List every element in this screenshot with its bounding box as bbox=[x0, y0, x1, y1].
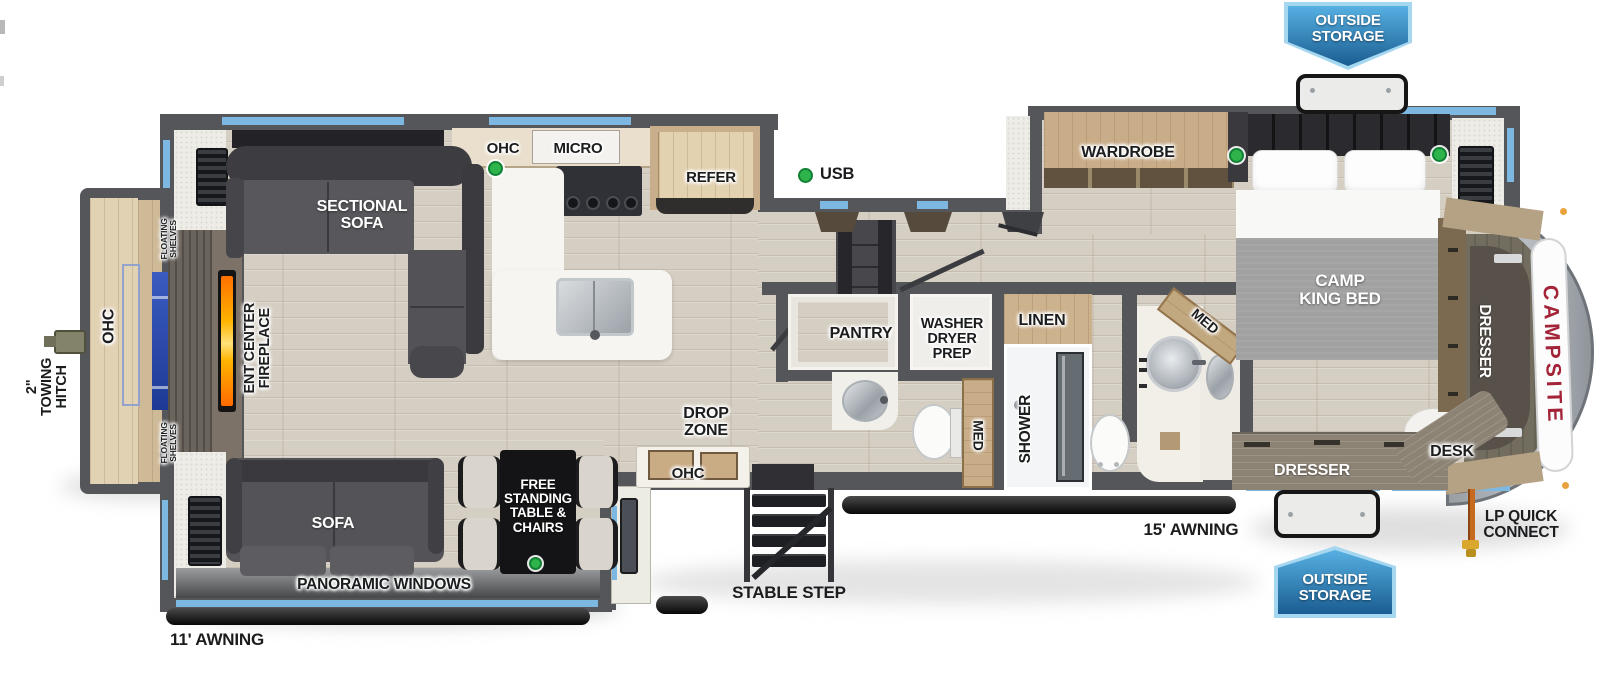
toilet-bolt bbox=[1098, 462, 1103, 467]
drop-zone-label: DROP ZONE bbox=[671, 406, 741, 440]
window-strip bbox=[489, 117, 631, 125]
kitchen-ohc-label: OHC bbox=[478, 141, 528, 157]
stove-burner bbox=[606, 196, 620, 210]
vanity-drawer-pull bbox=[1139, 368, 1147, 372]
bed-side-panel bbox=[1228, 112, 1248, 182]
shower-label: SHOWER bbox=[1018, 393, 1034, 465]
floating-shelves-top-label: FLOATING SHELVES bbox=[160, 215, 178, 263]
camp-king-bed-label: CAMP KING BED bbox=[1285, 272, 1395, 308]
green-indicator-dot bbox=[798, 168, 813, 183]
stable-step-label: STABLE STEP bbox=[729, 584, 849, 602]
sofa-backrest bbox=[230, 460, 440, 482]
green-indicator-dot bbox=[1432, 147, 1447, 162]
window-strip bbox=[820, 201, 848, 209]
drawer-pull bbox=[1384, 442, 1404, 447]
free-standing-table-label: FREE STANDING TABLE & CHAIRS bbox=[495, 478, 581, 535]
bed-pillow bbox=[1344, 150, 1426, 194]
sofa-footrest bbox=[240, 546, 326, 576]
bed-sheet bbox=[1236, 190, 1440, 240]
lp-pipe bbox=[1468, 489, 1475, 545]
tow-hitch-bracket bbox=[54, 330, 86, 354]
green-indicator-dot bbox=[529, 557, 542, 570]
window-strip bbox=[163, 140, 170, 188]
towing-hitch-label: 2" TOWING HITCH bbox=[25, 355, 71, 419]
entry-door-window bbox=[620, 498, 638, 574]
window-strip bbox=[1507, 128, 1514, 182]
sofa-arm bbox=[226, 458, 242, 554]
awning-front-label: 15' AWNING bbox=[1131, 521, 1251, 539]
window-strip bbox=[917, 201, 948, 209]
shower-glass bbox=[1056, 352, 1084, 482]
refrigerator-base bbox=[656, 198, 754, 214]
lp-fitting-tip bbox=[1466, 549, 1476, 557]
sectional-chaise-end bbox=[410, 346, 464, 378]
drop-zone-ohc-label: OHC bbox=[663, 466, 713, 482]
awning-rail-front bbox=[842, 496, 1236, 514]
kitchen-faucet bbox=[590, 330, 600, 340]
drawer-pull bbox=[1448, 296, 1458, 300]
toilet-bolt bbox=[1114, 462, 1119, 467]
green-indicator-dot bbox=[1229, 148, 1244, 163]
window-shade bbox=[196, 148, 228, 206]
panoramic-windows-label: PANORAMIC WINDOWS bbox=[289, 577, 479, 593]
rear-shelf-bracket bbox=[152, 296, 168, 299]
drawer-pull bbox=[1448, 392, 1458, 396]
awning-rail-rear bbox=[166, 608, 590, 625]
wardrobe-label: WARDROBE bbox=[1068, 145, 1188, 162]
toilet-front-bowl bbox=[1090, 414, 1130, 472]
screw bbox=[1360, 512, 1365, 517]
stair-tread-line bbox=[852, 244, 878, 246]
rear-ohc-label: OHC bbox=[102, 304, 119, 348]
lp-quick-connect-label: LP QUICK CONNECT bbox=[1476, 509, 1566, 542]
screw bbox=[1288, 512, 1293, 517]
bed-pillow bbox=[1252, 150, 1338, 194]
rear-shelf-bracket bbox=[152, 386, 168, 389]
sofa-arm bbox=[428, 458, 444, 554]
vanity-drawer-pull bbox=[1139, 358, 1147, 362]
stair-stringer bbox=[878, 220, 892, 300]
sectional-sofa-label: SECTIONAL SOFA bbox=[307, 199, 417, 233]
refrigerator-face bbox=[658, 132, 753, 204]
rear-cabinet-door-outline bbox=[122, 264, 140, 406]
vanity-wood-drawer bbox=[1160, 432, 1180, 450]
bath-faucet bbox=[880, 396, 888, 404]
fireplace-flame bbox=[221, 276, 233, 406]
outside-storage-bottom-label: OUTSIDE STORAGE bbox=[1280, 572, 1390, 604]
cabinet-wedge bbox=[904, 212, 952, 232]
sofa-label: SOFA bbox=[303, 516, 363, 533]
front-bath-faucet bbox=[1192, 360, 1206, 365]
entry-step-bumper bbox=[656, 596, 708, 614]
drawer-pull bbox=[1448, 248, 1458, 252]
floorplan-diagram: CAMPSITE bbox=[0, 0, 1600, 683]
screw bbox=[1386, 88, 1391, 93]
wall-shower-bath-divider bbox=[1122, 294, 1137, 442]
linen-label: LINEN bbox=[1002, 313, 1082, 330]
step-rail bbox=[744, 488, 750, 582]
step-rail bbox=[828, 488, 834, 582]
outside-storage-top-label: OUTSIDE STORAGE bbox=[1293, 13, 1403, 45]
green-indicator-dot bbox=[488, 161, 503, 176]
awning-rear-label: 11' AWNING bbox=[157, 631, 277, 649]
tow-hitch-pin bbox=[44, 336, 56, 347]
drawer-pull bbox=[1448, 344, 1458, 348]
clearance-light bbox=[1562, 482, 1569, 489]
step-tread bbox=[752, 494, 826, 507]
rear-tv bbox=[152, 272, 168, 410]
stair-tread-line bbox=[852, 286, 878, 288]
drawer-pull bbox=[1314, 440, 1340, 445]
stove-burner bbox=[586, 196, 600, 210]
stair-tread-line bbox=[852, 266, 878, 268]
window-strip bbox=[222, 117, 404, 125]
bedroom-slide-endwall-left bbox=[1006, 116, 1030, 210]
desk-label: DESK bbox=[1417, 444, 1487, 461]
vanity-drawer-pull bbox=[1139, 384, 1147, 388]
wall-top-mid bbox=[758, 198, 1036, 212]
sofa-footrest bbox=[330, 546, 414, 576]
stove-burner bbox=[566, 196, 580, 210]
stove-burner bbox=[624, 196, 638, 210]
window-strip bbox=[162, 500, 168, 580]
sectional-sofa-arm-left bbox=[226, 178, 244, 258]
glass-streak bbox=[1062, 356, 1065, 476]
floating-shelves-bottom-label: FLOATING SHELVES bbox=[160, 419, 178, 467]
ent-center-fireplace-label: ENT CENTER FIREPLACE bbox=[243, 292, 273, 404]
kitchen-sink-divider bbox=[593, 281, 595, 333]
storage-door-top bbox=[1296, 74, 1408, 114]
kitchen-sink bbox=[556, 278, 634, 336]
toilet-hall-tank bbox=[950, 408, 962, 458]
brand-logo-text: CAMPSITE bbox=[1538, 284, 1567, 425]
micro-label: MICRO bbox=[543, 141, 613, 157]
scan-mark bbox=[0, 76, 4, 86]
dresser-side-label: DRESSER bbox=[1476, 304, 1492, 378]
stair-stringer bbox=[838, 220, 852, 300]
refer-label: REFER bbox=[676, 170, 746, 186]
cabinet-wedge bbox=[815, 212, 859, 232]
clearance-light bbox=[1560, 208, 1567, 215]
stair-landing bbox=[752, 464, 814, 490]
pantry-label: PANTRY bbox=[816, 326, 906, 343]
washer-dryer-prep-label: WASHER DRYER PREP bbox=[912, 317, 992, 363]
wardrobe-shelf bbox=[1044, 168, 1234, 188]
front-bench-trim bbox=[1494, 254, 1522, 263]
usb-label: USB bbox=[820, 166, 870, 183]
sofa-seam bbox=[410, 306, 464, 308]
drawer-pull bbox=[1244, 442, 1270, 447]
scan-mark bbox=[0, 20, 5, 34]
window-strip bbox=[176, 600, 598, 607]
screw bbox=[1310, 88, 1315, 93]
window-shade bbox=[188, 496, 222, 566]
med-hall-label: MED bbox=[971, 417, 986, 453]
dresser-front-label: DRESSER bbox=[1262, 463, 1362, 480]
